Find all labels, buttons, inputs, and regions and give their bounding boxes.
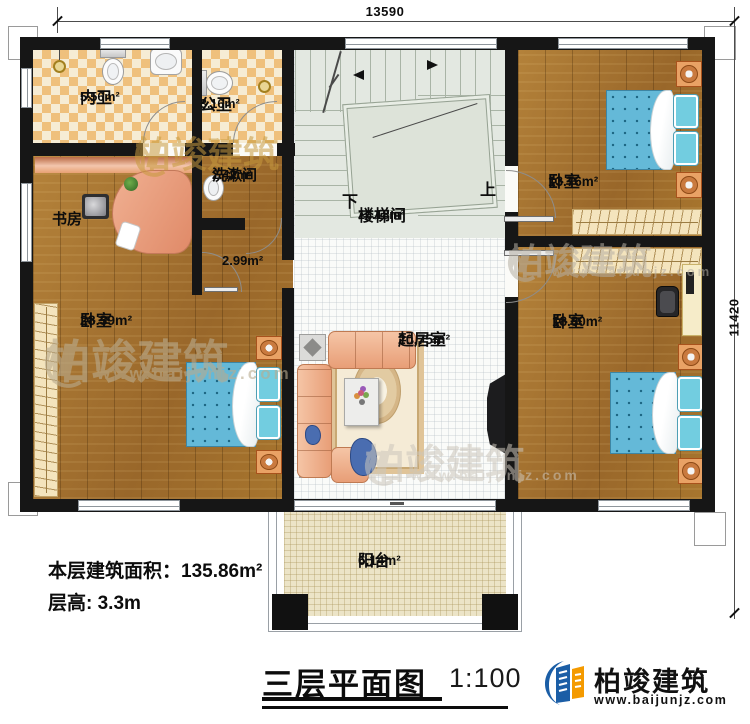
window — [78, 500, 180, 511]
sink-icon — [150, 48, 182, 75]
wall — [282, 37, 294, 260]
window — [558, 38, 688, 49]
door-leaf — [204, 287, 238, 292]
stair-landing — [342, 94, 498, 218]
dimension-line-top — [57, 21, 735, 22]
wall — [192, 143, 202, 295]
brand-logo-icon — [540, 656, 588, 708]
floor-area-note: 本层建筑面积：135.86m² — [48, 556, 262, 583]
nightstand — [256, 450, 282, 474]
bed-pillow — [678, 377, 702, 411]
stair-direction-arrow — [427, 60, 443, 70]
coffee-table — [344, 378, 379, 426]
room-area: 5.56m² — [80, 90, 120, 104]
desk-item-icon — [686, 272, 694, 294]
sliding-door-tick — [390, 502, 404, 505]
side-table — [299, 334, 326, 361]
plant-icon — [124, 177, 138, 191]
bed-pillow — [674, 95, 698, 128]
floor-area-value: 135.86m² — [181, 561, 262, 582]
room-area: 16.18m² — [358, 208, 405, 222]
toilet-icon — [102, 58, 124, 85]
flower-decor-icon — [358, 390, 364, 396]
scale-label: 1:100 — [449, 663, 522, 694]
room-area: 13.76m² — [548, 174, 598, 189]
wall — [282, 288, 294, 499]
bed-blanket — [652, 372, 680, 454]
bed-pillow — [257, 406, 280, 439]
room-area: 3.16m² — [200, 97, 240, 111]
wall — [20, 37, 33, 512]
bed-pillow — [257, 368, 280, 401]
shower-drain-icon — [53, 60, 66, 73]
balcony-post — [482, 594, 518, 630]
corner-pier — [694, 512, 726, 546]
room-area: 2.42m² — [212, 168, 252, 182]
stair-direction-arrow — [348, 70, 364, 80]
room-name: 书房 — [52, 212, 82, 229]
wardrobe — [572, 209, 702, 235]
stair-down-label: 下 — [342, 188, 358, 212]
window — [345, 38, 497, 49]
bed-pillow — [674, 132, 698, 165]
room-area: 6.14m² — [358, 553, 401, 568]
room-area: 20.75m² — [398, 332, 450, 348]
wall — [702, 37, 715, 512]
door-opening — [233, 143, 277, 156]
nightstand — [676, 172, 702, 198]
room-area: 28.39m² — [80, 313, 132, 329]
sofa — [297, 364, 332, 478]
floor-drain-icon — [258, 80, 271, 93]
nightstand — [678, 344, 704, 370]
tv-icon — [487, 374, 506, 454]
dimension-right-value: 11420 — [727, 288, 742, 348]
bed-pillow — [678, 416, 702, 450]
toilet-icon — [206, 71, 233, 95]
nightstand — [676, 61, 702, 87]
floor-height-value: 3.3m — [98, 593, 141, 614]
nightstand — [256, 336, 282, 360]
wall — [202, 218, 245, 230]
desk-chair — [656, 286, 679, 317]
floor-area-label: 本层建筑面积： — [48, 561, 181, 582]
wall — [518, 236, 702, 247]
computer-monitor-icon — [82, 194, 109, 219]
bed-blanket — [650, 90, 676, 170]
dimension-top-value: 13590 — [345, 4, 425, 19]
room-area: 18.80m² — [552, 314, 602, 329]
stair-up-label: 上 — [480, 176, 496, 200]
bed-blanket — [232, 362, 260, 447]
nightstand — [678, 458, 704, 484]
wardrobe — [34, 303, 58, 497]
window — [100, 38, 170, 49]
brand-url: www.baijunjz.com — [594, 693, 727, 707]
person-figure — [305, 425, 321, 445]
window — [598, 500, 690, 511]
floor-height-note: 层高: 3.3m — [48, 588, 141, 615]
room-area: 2.99m² — [222, 254, 263, 269]
window — [21, 68, 32, 108]
balcony-post — [272, 594, 308, 630]
person-figure — [350, 438, 377, 476]
door-opening — [143, 143, 185, 156]
title-underline-long — [262, 706, 508, 709]
door-leaf — [504, 250, 554, 256]
floor-height-label: 层高: — [48, 593, 98, 614]
window — [21, 183, 32, 262]
floor-plan: 13590 11420 — [0, 0, 750, 724]
door-leaf — [504, 216, 554, 222]
title-underline — [262, 697, 442, 701]
brand-logo: 柏竣建筑 www.baijunjz.com — [540, 652, 745, 714]
